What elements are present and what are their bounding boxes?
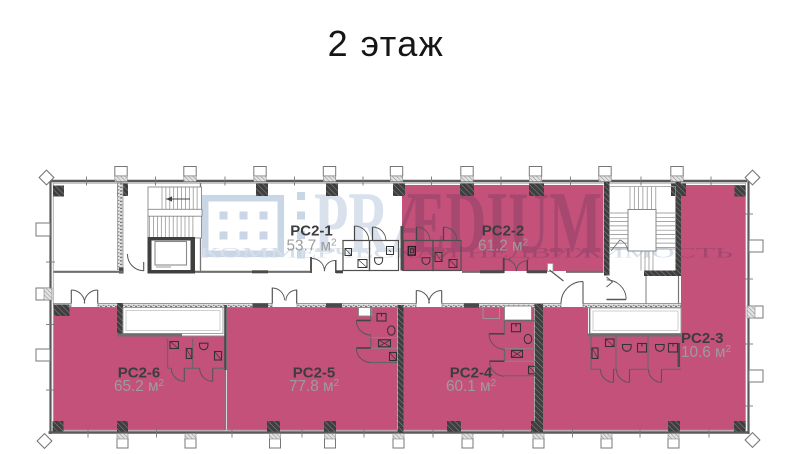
- svg-text:53.7 м2: 53.7 м2: [286, 238, 337, 255]
- svg-text:77.8 м2: 77.8 м2: [289, 378, 340, 395]
- svg-text:2 этаж: 2 этаж: [328, 23, 445, 64]
- svg-text:61.2 м2: 61.2 м2: [478, 238, 529, 255]
- svg-text:65.2 м2: 65.2 м2: [114, 378, 165, 395]
- svg-text:10.6 м2: 10.6 м2: [681, 344, 732, 361]
- svg-text:60.1 м2: 60.1 м2: [446, 378, 497, 395]
